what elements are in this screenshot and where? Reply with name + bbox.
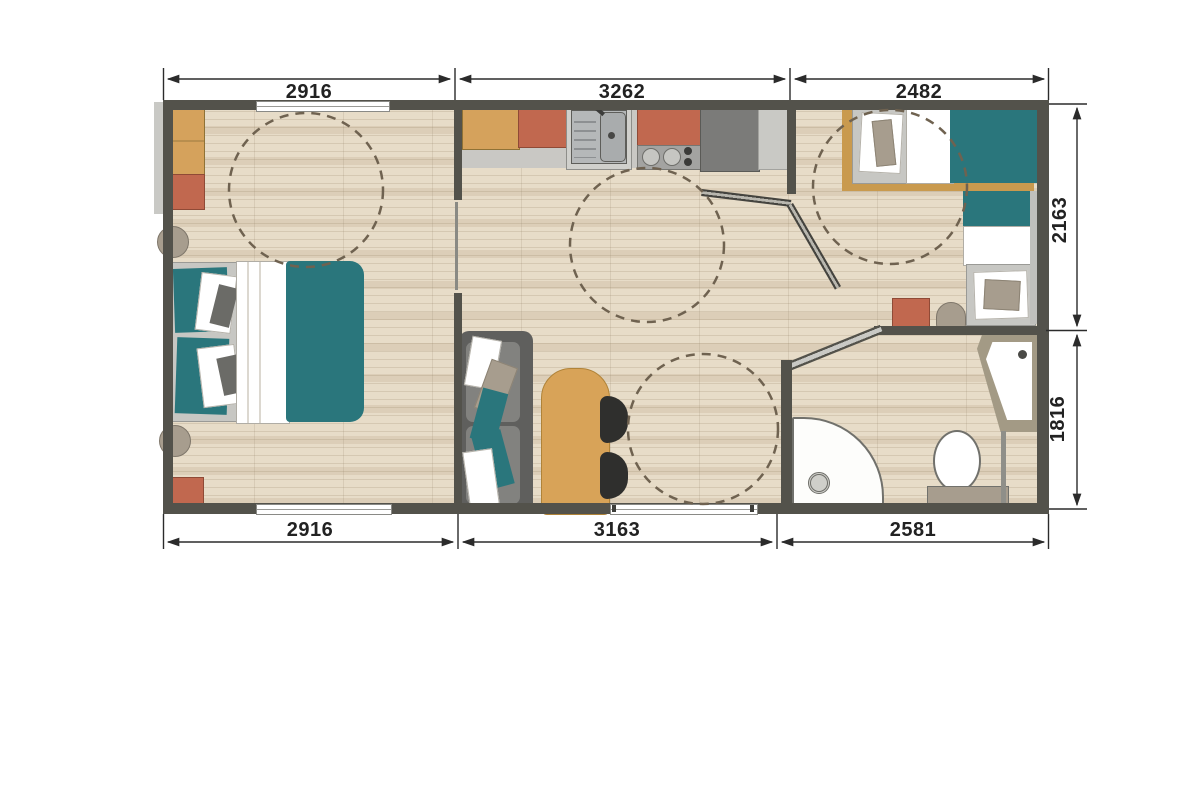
dim-label-bottom-middle: 3163 bbox=[562, 519, 672, 541]
dim-label-bottom-right: 2581 bbox=[858, 519, 968, 541]
dim-label-bottom-left: 2916 bbox=[255, 519, 365, 541]
turning-circle bbox=[628, 354, 778, 504]
dim-label-top-middle: 3262 bbox=[567, 81, 677, 103]
dim-label-top-left: 2916 bbox=[254, 81, 364, 103]
floor-plan: 2916 3262 2482 2916 3163 2581 2163 1816 bbox=[0, 0, 1200, 800]
dim-label-right-upper: 2163 bbox=[1049, 165, 1071, 275]
annotation-layer bbox=[0, 0, 1200, 800]
turning-circle bbox=[813, 110, 967, 264]
dim-label-right-lower: 1816 bbox=[1047, 364, 1069, 474]
dimension-lines bbox=[164, 68, 1088, 549]
dim-label-top-right: 2482 bbox=[864, 81, 974, 103]
turning-circle bbox=[229, 113, 383, 267]
turning-circle bbox=[570, 168, 724, 322]
turning-circles bbox=[229, 110, 967, 504]
